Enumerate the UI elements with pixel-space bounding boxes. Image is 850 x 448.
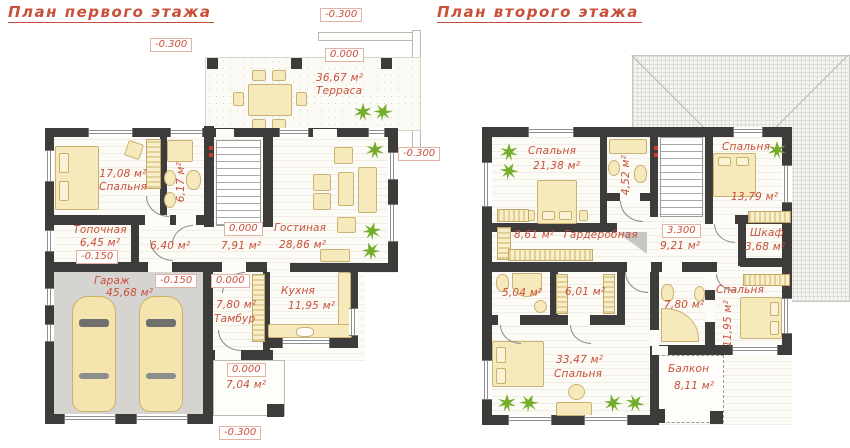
room-area: 36,67 м² — [316, 72, 363, 85]
room-label-hall: 6,40 м² — [150, 240, 190, 253]
pillow — [718, 157, 731, 166]
window — [170, 128, 203, 137]
elevation-label: -0.150 — [76, 250, 118, 264]
room-label-terrace: 36,67 м² Терраса — [316, 72, 363, 98]
elevation-label: 0.000 — [224, 222, 263, 236]
elevation-label: 0.000 — [227, 363, 266, 377]
room-label-balcony-name: Балкон — [668, 363, 709, 376]
room-label-storage: 6,01 м² — [565, 286, 605, 299]
door-opening — [705, 272, 715, 290]
window — [782, 298, 792, 334]
pillow — [770, 321, 779, 335]
marker-dot — [654, 146, 658, 150]
room-label-stair-hall: 7,91 м² — [221, 240, 261, 253]
window — [45, 150, 54, 182]
door-opening — [176, 215, 196, 225]
car-rear-window — [146, 373, 176, 379]
elevation-label: 3.300 — [662, 224, 701, 238]
room-area: 17,08 м² — [88, 168, 158, 181]
window — [45, 324, 54, 342]
window — [782, 165, 792, 203]
room-name: Спальня — [88, 181, 158, 194]
room-name: Топочная — [62, 224, 138, 237]
nightstand — [579, 210, 588, 221]
bed — [740, 297, 782, 339]
room-label-bath1: 4,52 м² — [620, 155, 632, 195]
room-label-wardrobe: 8,61 м² Гардеробная — [514, 229, 638, 242]
door-opening — [498, 315, 520, 325]
sink — [608, 160, 620, 176]
car-top-view — [139, 296, 183, 412]
door-opening — [216, 129, 234, 137]
balcony-post — [710, 411, 723, 424]
window — [279, 128, 309, 137]
room-label-tambour-name: Тамбур — [214, 313, 255, 326]
armchair — [313, 174, 331, 191]
floor2-title: План второго этажа — [437, 3, 642, 23]
elevation-label: -0.300 — [150, 38, 192, 52]
pillow — [770, 302, 779, 316]
room-label-closet-area: 3,68 м² — [745, 241, 785, 254]
window — [282, 338, 330, 348]
marker-dot — [209, 153, 213, 157]
door-opening — [705, 300, 715, 322]
room-label-bath3: 7,80 м² — [664, 299, 704, 312]
marker-dot — [654, 153, 658, 157]
pillow — [736, 157, 749, 166]
room-label-bedroom3-name: Спальня — [716, 284, 764, 297]
room-label-kitchen-area: 11,95 м² — [288, 300, 335, 313]
wall — [650, 127, 658, 217]
window — [508, 415, 552, 425]
car-top-view — [72, 296, 116, 412]
wall — [600, 127, 607, 223]
wall — [290, 263, 398, 272]
room-label-bedroom1-area: 21,38 м² — [533, 160, 580, 173]
room-label-bedroom4-name: Спальня — [554, 368, 602, 381]
toilet — [634, 165, 647, 183]
car-rear-window — [79, 373, 109, 379]
room-label-bedroom4-area: 33,47 м² — [556, 354, 603, 367]
toilet — [186, 170, 201, 190]
door-opening — [662, 262, 682, 272]
pillow — [496, 347, 506, 363]
room-label-bedroom1-name: Спальня — [528, 145, 576, 158]
elevation-label: -0.300 — [219, 426, 261, 440]
door-opening — [652, 346, 668, 355]
room-label-boiler: Топочная 6,45 м² — [62, 224, 138, 250]
car-windshield — [146, 319, 176, 327]
window — [88, 128, 133, 137]
balcony-post — [652, 409, 665, 423]
pillow — [559, 211, 572, 220]
wall — [617, 262, 625, 317]
window — [388, 152, 398, 180]
kitchen-sink — [296, 327, 314, 337]
window — [482, 360, 492, 400]
sofa — [358, 167, 377, 213]
armchair — [313, 193, 331, 210]
room-label-hall: 9,21 м² — [660, 240, 700, 253]
wardrobe-strip — [508, 249, 593, 261]
room-area: 8,61 м² — [514, 229, 554, 241]
room-name: Гардеробная — [558, 229, 638, 241]
room-label-garage-area: 45,68 м² — [106, 287, 153, 300]
elevation-label: 0.000 — [325, 48, 364, 62]
room-label-living-area: 28,86 м² — [279, 239, 326, 252]
wall — [388, 128, 398, 272]
room-area: 6,45 м² — [62, 237, 138, 250]
wall — [263, 128, 273, 227]
elevation-label: -0.300 — [320, 8, 362, 22]
window — [584, 415, 628, 425]
room-label-kitchen-name: Кухня — [281, 285, 315, 298]
garage-gate — [64, 414, 116, 424]
window — [45, 230, 54, 252]
room-label-bath2: 5,04 м² — [502, 287, 542, 300]
window — [528, 127, 574, 137]
elevation-label: -0.150 — [155, 274, 197, 288]
floor-plans-sheet: План первого этажа — [0, 0, 850, 448]
door-opening — [568, 315, 590, 325]
room-label-bedroom3-area: 11,95 м² — [722, 300, 734, 347]
room-label-bedroom2-name: Спальня — [722, 141, 770, 154]
room-label-balcony-area: 8,11 м² — [674, 380, 714, 393]
door-opening — [313, 129, 337, 137]
room-label-bedroom2-area: 13,79 м² — [731, 191, 778, 204]
bathtub — [609, 139, 647, 154]
wall — [740, 258, 792, 267]
marker-dot — [209, 146, 213, 150]
car-windshield — [79, 319, 109, 327]
armchair — [337, 217, 356, 233]
window — [45, 288, 54, 306]
window — [368, 128, 385, 137]
room-label-porch: 7,04 м² — [226, 379, 266, 392]
door-opening — [650, 330, 659, 346]
room-label-tambour-area: 7,80 м² — [216, 299, 256, 312]
desk — [556, 402, 592, 416]
staircase — [660, 137, 703, 217]
pillow — [59, 153, 69, 173]
window — [732, 345, 778, 355]
bed — [537, 180, 577, 224]
elevation-label: 0.000 — [211, 274, 250, 288]
wardrobe-strip — [748, 211, 791, 223]
door-opening — [222, 262, 246, 272]
wall — [705, 127, 713, 215]
window — [349, 308, 358, 336]
wardrobe-strip — [497, 209, 529, 222]
wall — [204, 126, 214, 227]
room-label-bath: 6,17 м² — [175, 162, 187, 202]
shower — [167, 140, 193, 162]
porch-post — [267, 404, 284, 417]
pillow — [542, 211, 555, 220]
door-opening — [627, 262, 651, 272]
window — [733, 127, 763, 137]
door-opening — [215, 350, 241, 360]
bed — [492, 341, 544, 387]
room-label-closet-name: Шкаф — [750, 227, 784, 240]
window — [388, 204, 398, 242]
chair — [568, 384, 585, 400]
sink — [534, 300, 547, 313]
armchair — [334, 147, 353, 164]
room-label-living-name: Гостиная — [274, 222, 326, 235]
staircase — [216, 140, 261, 226]
coffee-table — [338, 172, 354, 206]
pillow — [59, 181, 69, 201]
window — [482, 162, 492, 207]
garage-gate — [136, 414, 188, 424]
pillow — [496, 368, 506, 384]
room-name: Терраса — [316, 85, 363, 98]
elevation-label: -0.300 — [398, 147, 440, 161]
door-opening — [148, 262, 172, 272]
room-label-bedroom: 17,08 м² Спальня — [88, 168, 158, 194]
door-opening — [713, 215, 735, 224]
